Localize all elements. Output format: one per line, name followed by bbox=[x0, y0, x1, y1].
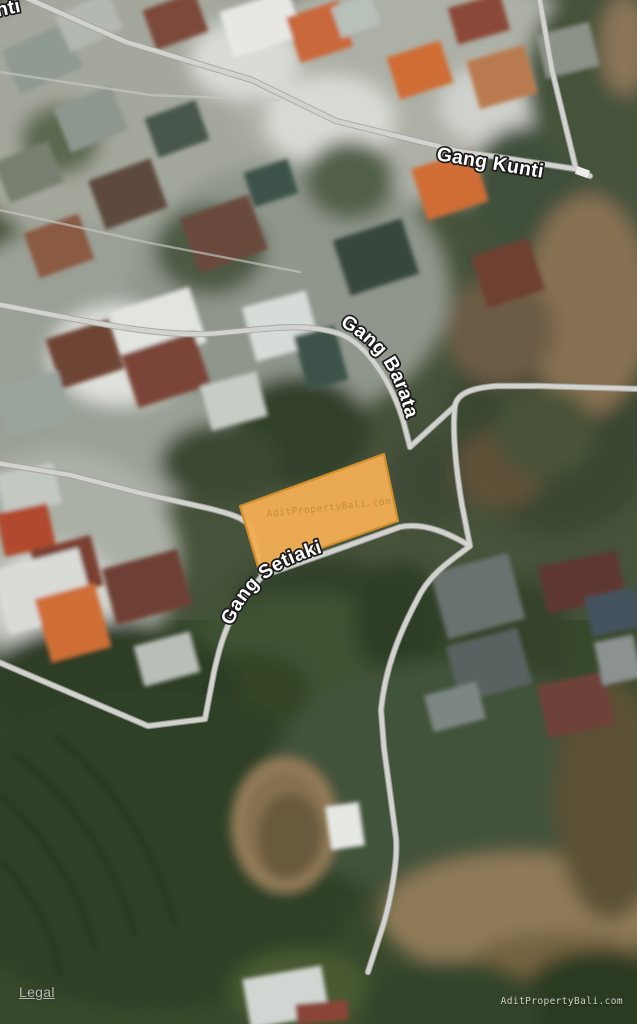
map-canvas[interactable]: AditPropertyBali.com nti Gang Kunti Gang… bbox=[0, 0, 637, 1024]
bottom-watermark: AditPropertyBali.com bbox=[501, 996, 623, 1007]
satellite-map[interactable]: AditPropertyBali.com nti Gang Kunti Gang… bbox=[0, 0, 637, 1024]
legal-link[interactable]: Legal bbox=[19, 984, 55, 1000]
dirt-clearing bbox=[230, 755, 340, 895]
